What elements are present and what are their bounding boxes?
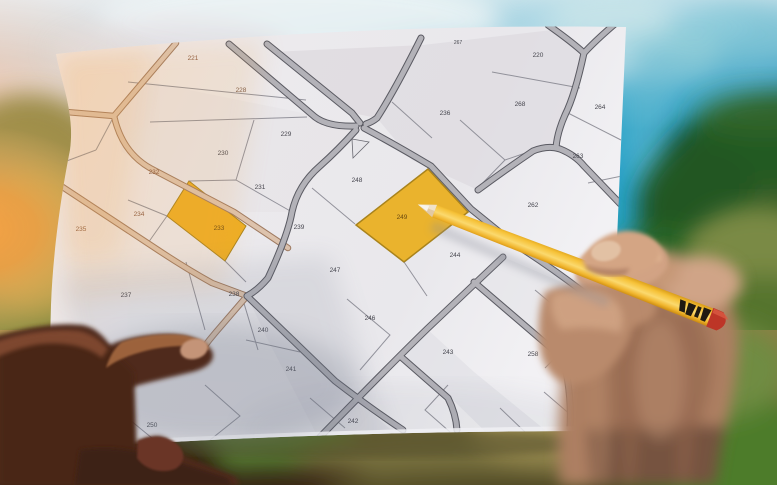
svg-text:262: 262 bbox=[528, 202, 539, 209]
svg-text:267: 267 bbox=[454, 40, 463, 46]
svg-text:249: 249 bbox=[397, 214, 408, 221]
svg-text:264: 264 bbox=[595, 104, 606, 111]
svg-text:248: 248 bbox=[352, 177, 363, 184]
svg-text:236: 236 bbox=[440, 110, 451, 117]
svg-text:220: 220 bbox=[533, 52, 544, 59]
svg-text:231: 231 bbox=[255, 184, 266, 191]
svg-text:229: 229 bbox=[281, 131, 292, 138]
svg-text:239: 239 bbox=[294, 224, 305, 231]
svg-text:246: 246 bbox=[365, 315, 376, 322]
svg-text:258: 258 bbox=[528, 351, 539, 358]
svg-text:244: 244 bbox=[450, 252, 461, 259]
svg-text:263: 263 bbox=[573, 153, 584, 160]
svg-text:268: 268 bbox=[515, 101, 526, 108]
svg-text:243: 243 bbox=[443, 349, 454, 356]
